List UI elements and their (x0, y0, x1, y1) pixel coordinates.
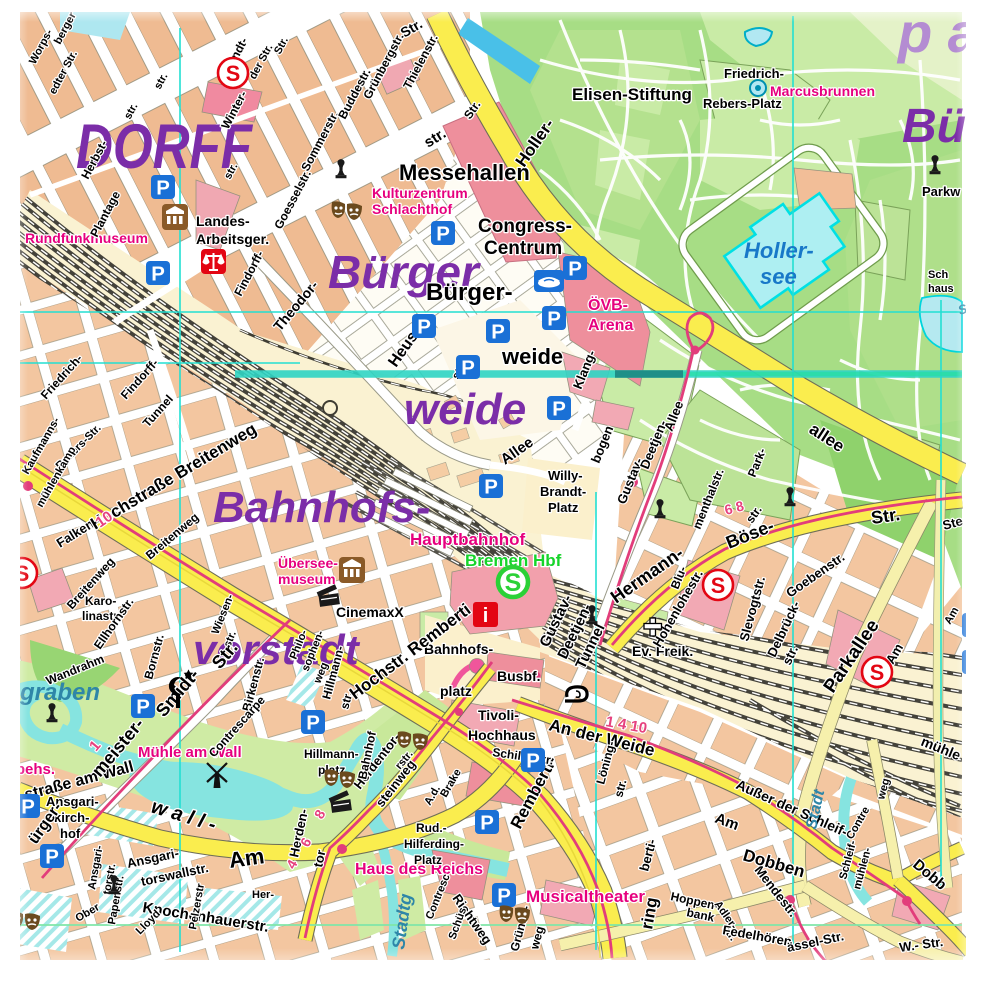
svg-text:Sch: Sch (928, 269, 948, 281)
svg-text:Bahnhofs-: Bahnhofs- (213, 483, 431, 532)
svg-text:P: P (156, 178, 170, 200)
svg-text:Kulturzentrum: Kulturzentrum (372, 185, 468, 201)
svg-text:Arbeitsger.: Arbeitsger. (196, 231, 269, 247)
svg-text:P: P (306, 713, 320, 735)
svg-text:P: P (45, 847, 59, 869)
svg-text:S: S (711, 573, 726, 598)
svg-text:Am: Am (227, 843, 266, 873)
svg-text:S: S (226, 61, 241, 86)
svg-text:Platz: Platz (414, 853, 442, 867)
svg-text:Elisen-Stiftung: Elisen-Stiftung (572, 85, 692, 104)
svg-text:CinemaxX: CinemaxX (336, 604, 404, 620)
svg-text:Hilferding-: Hilferding- (404, 837, 464, 851)
svg-text:P: P (491, 322, 505, 344)
svg-text:museum: museum (278, 571, 336, 587)
svg-text:Busbf.: Busbf. (497, 668, 541, 684)
svg-text:P: P (461, 358, 475, 380)
svg-text:Rud.-: Rud.- (416, 821, 447, 835)
svg-text:see: see (760, 264, 797, 289)
svg-text:P: P (136, 697, 150, 719)
svg-text:P: P (526, 751, 540, 773)
svg-text:Congress-: Congress- (478, 216, 572, 237)
svg-text:Messehallen: Messehallen (399, 160, 530, 185)
svg-text:Willy-: Willy- (548, 468, 583, 483)
svg-text:haus: haus (928, 283, 954, 295)
svg-text:Holler-: Holler- (744, 238, 814, 263)
svg-text:Tivoli-: Tivoli- (478, 707, 519, 723)
svg-text:platz: platz (440, 683, 472, 699)
svg-text:Arena: Arena (588, 317, 633, 334)
svg-text:Bürger-: Bürger- (426, 279, 513, 306)
svg-text:S: S (870, 660, 885, 685)
svg-text:ÖVB-: ÖVB- (588, 295, 628, 314)
svg-text:Hauptbahnhof: Hauptbahnhof (410, 530, 526, 549)
svg-text:P: P (547, 309, 561, 331)
svg-text:S: S (505, 569, 522, 597)
svg-text:weide: weide (501, 344, 563, 369)
svg-text:Centrum: Centrum (484, 238, 562, 259)
svg-text:Platz: Platz (548, 500, 579, 515)
svg-text:Übersee-: Übersee- (278, 555, 338, 571)
svg-text:P: P (436, 224, 450, 246)
svg-text:Marcusbrunnen: Marcusbrunnen (770, 83, 875, 99)
svg-text:P: P (552, 399, 566, 421)
svg-text:P: P (568, 259, 582, 281)
svg-text:P: P (484, 477, 498, 499)
svg-text:Her-: Her- (252, 889, 274, 901)
svg-text:Karo-: Karo- (85, 594, 116, 608)
svg-text:P: P (497, 886, 511, 908)
svg-text:P: P (480, 813, 494, 835)
svg-text:Friedrich-: Friedrich- (724, 66, 784, 81)
svg-text:Schlachthof: Schlachthof (372, 201, 452, 217)
svg-text:P: P (151, 264, 165, 286)
svg-text:Landes-: Landes- (196, 213, 250, 229)
svg-text:i: i (483, 605, 489, 627)
svg-text:Hochhaus: Hochhaus (468, 727, 536, 743)
svg-text:P: P (417, 317, 431, 339)
svg-text:Hillmann-: Hillmann- (304, 747, 359, 761)
svg-text:Str.: Str. (870, 504, 902, 528)
svg-text:Brandt-: Brandt- (540, 484, 586, 499)
svg-text:hof: hof (60, 826, 81, 841)
svg-text:Parkw: Parkw (922, 184, 961, 199)
svg-text:weide: weide (404, 385, 526, 434)
svg-text:Musicaltheater: Musicaltheater (526, 887, 645, 906)
